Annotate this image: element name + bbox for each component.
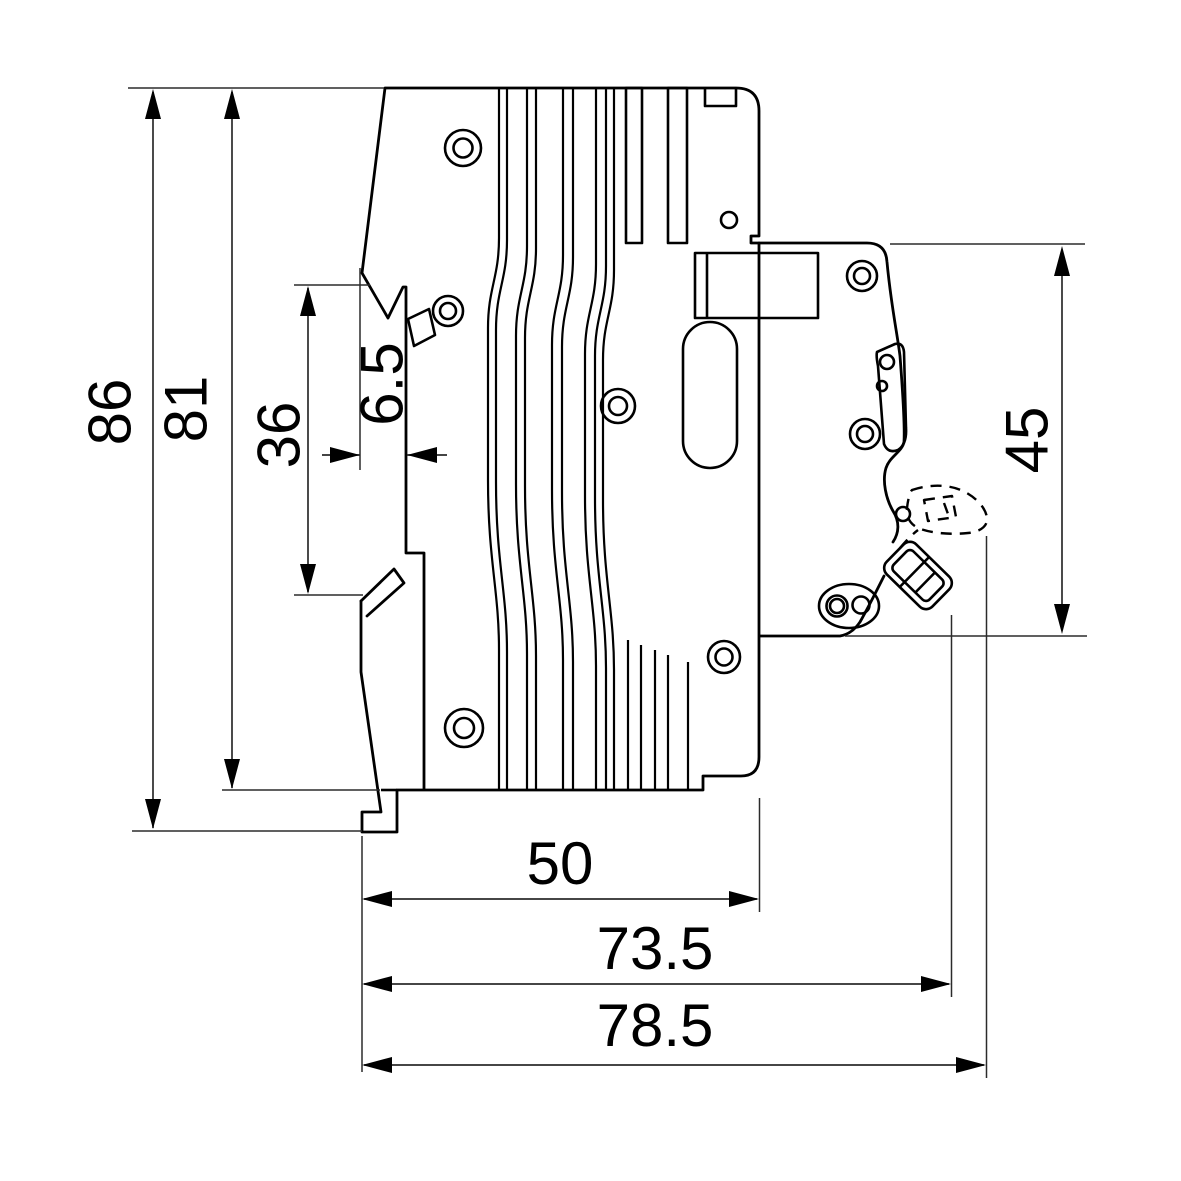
dim-label-36: 36 [246,402,313,469]
dim-label-73-5: 73.5 [597,915,714,982]
dimensions: 86 81 36 6.5 45 [77,88,1088,1078]
terminal-screw [853,597,870,614]
drawing-canvas: 86 81 36 6.5 45 [0,0,1181,1181]
dim-label-6-5: 6.5 [349,342,416,425]
rivet-inner [609,397,627,415]
case-bottom-and-rear-edge [361,243,759,832]
terminal-window [695,253,818,318]
dimension-45: 45 [994,246,1071,634]
toggle-lever-off [880,538,955,613]
rivet-outer [433,296,463,326]
toggle-lever-on-dashed [900,486,987,548]
rivet-outer [601,389,635,423]
rivet-outer [847,261,877,291]
rivets-and-holes [433,130,910,747]
dimension-50: 50 [362,830,759,907]
rivet-inner [454,718,474,738]
handle-slot [683,322,737,468]
dimension-36: 36 [246,286,317,594]
rivet-outer [445,130,481,166]
rivet-outer [445,709,483,747]
dim-label-86: 86 [77,379,144,446]
dim-label-78-5: 78.5 [597,992,714,1059]
front-lower-edge [760,576,884,636]
small-hole [721,212,737,228]
rivet-outer [708,641,740,673]
rivet-inner [454,139,473,158]
terminal-screw [830,599,844,613]
rivet-outer [850,419,880,449]
front-section-details [683,253,906,628]
dim-label-81: 81 [153,376,220,443]
dim-label-45: 45 [994,407,1061,474]
din-lower-hook [361,569,404,616]
top-slot-groove [668,88,687,243]
linkage-hole [880,355,894,369]
case-rib-lines [488,88,688,789]
dimension-78-5: 78.5 [362,992,986,1073]
dimension-6-5: 6.5 [322,342,447,463]
rivet-inner [854,268,870,284]
din-clip-spring [408,309,435,346]
rivet-inner [857,426,873,442]
breaker-body-outline [361,88,904,832]
dimension-86: 86 [77,89,162,829]
dimension-81: 81 [153,89,241,789]
dimension-73-5: 73.5 [362,915,951,992]
case-top-and-front-edge [362,88,904,542]
rivet-inner [440,303,456,319]
top-notch [705,88,736,106]
technical-drawing: 86 81 36 6.5 45 [0,0,1181,1181]
top-slot-groove [626,88,642,243]
rivet-inner [716,649,733,666]
dim-label-50: 50 [527,830,594,897]
